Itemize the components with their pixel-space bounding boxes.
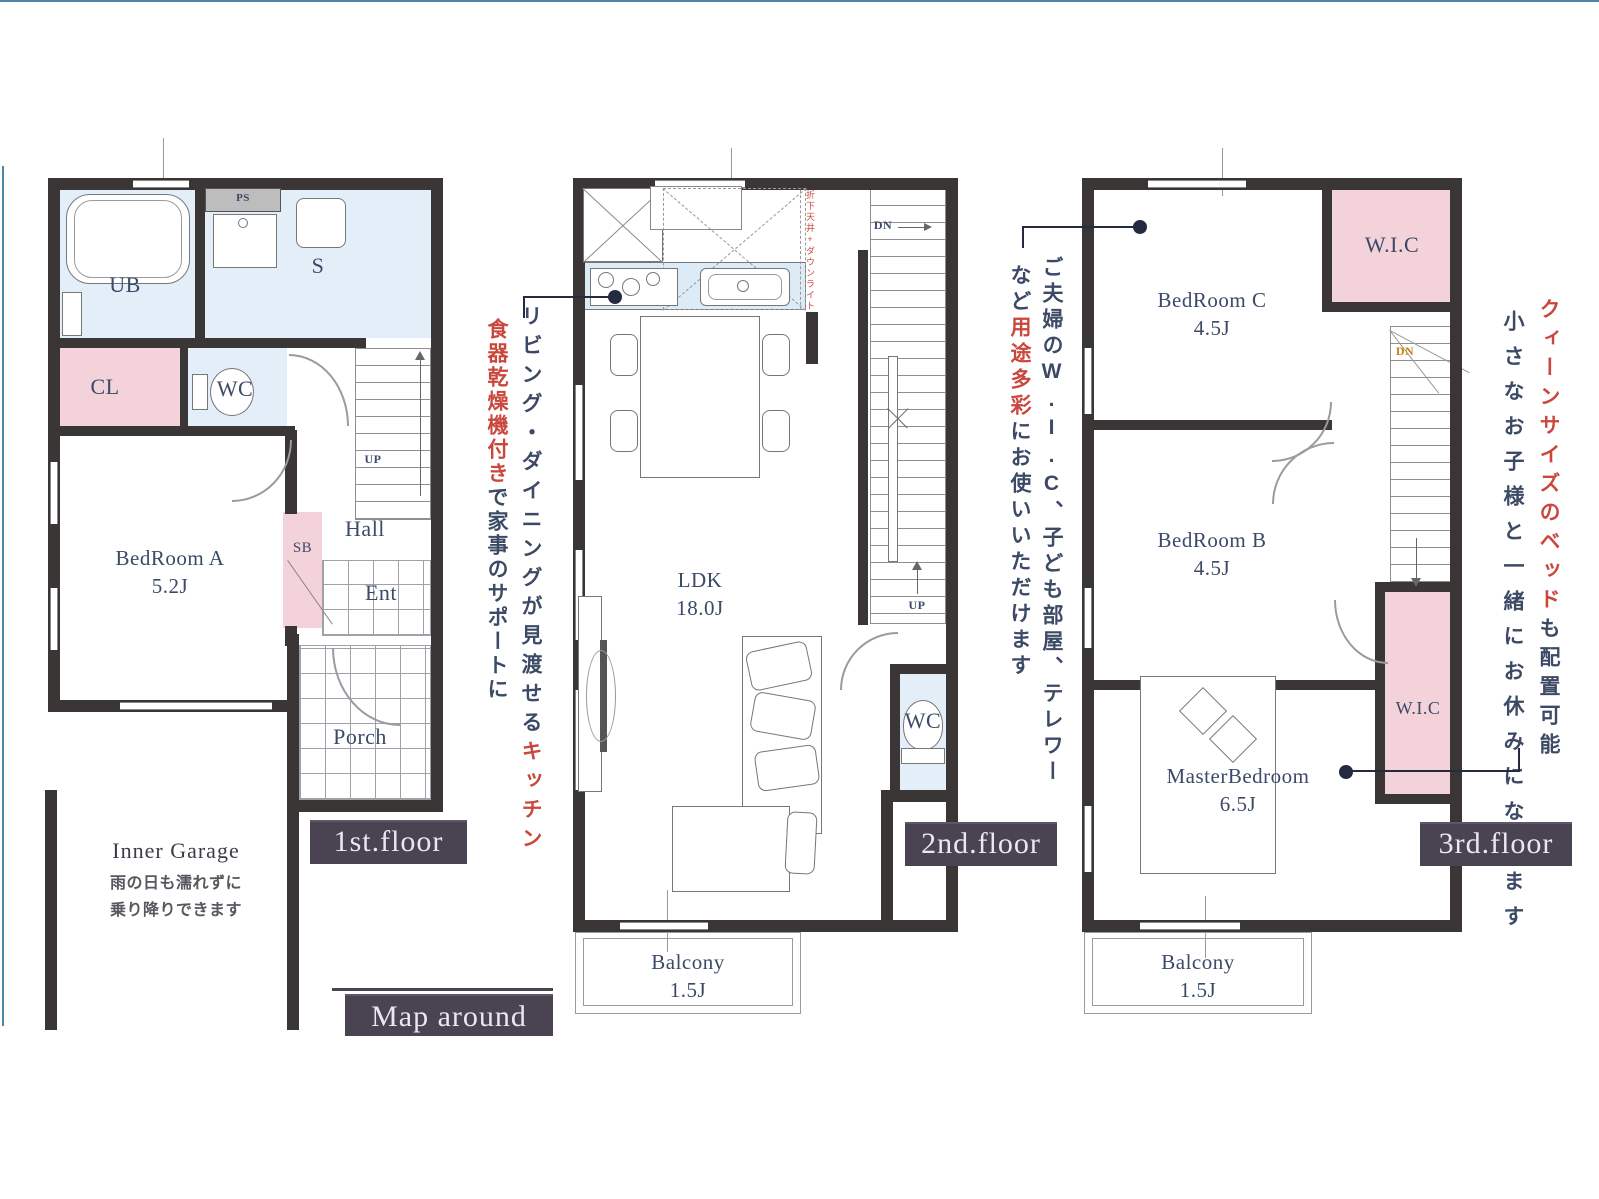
window	[1084, 348, 1092, 414]
door-arc-wc-2f	[840, 632, 898, 690]
annotation-bed-col1: クィーンサイズのベッドも配置可能	[1533, 298, 1563, 762]
room-label-ub: UB	[85, 272, 165, 298]
window	[1140, 922, 1240, 930]
balcony-size-2f: 1.5J	[670, 978, 706, 1002]
balcony-name-3f: Balcony	[1161, 950, 1234, 974]
bedroom-b-name: BedRoom B	[1158, 528, 1267, 552]
room-label-ps: PS	[207, 192, 279, 204]
wall	[180, 348, 188, 432]
room-label-master: MasterBedroom 6.5J	[1148, 762, 1328, 818]
bedroom-c-size: 4.5J	[1194, 316, 1230, 340]
room-sb	[283, 512, 322, 628]
window	[620, 922, 708, 930]
stairs-dn-label-3f: DN	[1390, 344, 1420, 359]
balcony-label-3f: Balcony 1.5J	[1128, 948, 1268, 1004]
annotation-text: も配置可能	[1537, 617, 1560, 762]
chair	[610, 410, 638, 452]
dining-table	[640, 316, 760, 478]
wall	[48, 426, 295, 436]
leader-line	[523, 296, 615, 298]
floor3-badge: 3rd.floor	[1420, 822, 1572, 866]
wall	[285, 626, 297, 646]
up-arrow-line	[917, 566, 918, 594]
window	[50, 588, 58, 650]
stairs-arrow-up	[415, 348, 425, 360]
window	[1084, 806, 1092, 872]
garage-wall	[45, 790, 57, 1030]
bedroom-a-size: 5.2J	[152, 574, 188, 598]
stairs-arrow-line	[420, 356, 421, 496]
door-arc-master	[1334, 600, 1388, 664]
annotation-kitchen-col2: 食器乾燥機付きで家事のサポートに	[481, 318, 511, 702]
wall	[195, 186, 205, 344]
ldk-name: LDK	[678, 568, 723, 592]
room-wic-bottom	[1385, 592, 1450, 794]
annotation-text: で家事のサポートに	[485, 486, 508, 702]
chair	[762, 334, 790, 376]
leader-line	[1518, 748, 1520, 772]
annotation-dot-master	[1339, 765, 1353, 779]
annotation-text: リビング・ダイニングが見渡せる	[519, 305, 542, 740]
annotation-text: にお使いいただけます	[1008, 420, 1031, 680]
window	[1148, 180, 1246, 188]
burner	[622, 278, 640, 296]
garage-note: Inner Garage 雨の日も濡れずに 乗り降りできます	[78, 838, 274, 924]
stairs-2f	[870, 188, 946, 624]
dn-arrow-line-3f	[1416, 538, 1417, 580]
wall	[1322, 302, 1462, 312]
leader-line	[523, 296, 525, 318]
room-label-wc-2f: WC	[895, 708, 951, 734]
toilet-tank-2f	[901, 748, 945, 764]
stairs-up-label-2f: UP	[902, 598, 932, 613]
door-arc-bedroom-a	[232, 440, 292, 502]
window	[120, 702, 272, 710]
stairs-up-label-1f: UP	[358, 452, 388, 467]
stool	[296, 198, 346, 248]
annotation-text: など	[1008, 264, 1031, 316]
room-label-cl: CL	[75, 374, 135, 400]
wall	[287, 634, 299, 812]
bedroom-c-name: BedRoom C	[1158, 288, 1267, 312]
faucet	[737, 280, 749, 292]
sofa-seat	[672, 806, 790, 892]
room-label-wc: WC	[205, 376, 265, 402]
garage-title: Inner Garage	[78, 838, 274, 864]
window	[1084, 588, 1092, 648]
bathtub-inner	[74, 200, 182, 278]
wall	[1082, 178, 1462, 190]
dashed-line	[800, 190, 801, 310]
room-label-ent: Ent	[350, 580, 412, 606]
annotation-kitchen-col1: リビング・ダイニングが見渡せるキッチン	[515, 305, 545, 856]
master-size: 6.5J	[1220, 792, 1256, 816]
wall	[881, 800, 893, 932]
wall	[806, 312, 818, 364]
annotation-text-red: キッチン	[519, 740, 542, 856]
kitchen-ceiling-note: 折下天井+ダウンライト	[804, 190, 817, 312]
map-badge-rule	[332, 988, 553, 991]
annotation-text-red: 用途多彩	[1008, 316, 1031, 420]
sofa-cushion	[784, 811, 817, 874]
room-label-bedroom-c: BedRoom C 4.5J	[1137, 286, 1287, 342]
wall	[287, 800, 443, 812]
garage-note-line2: 乗り降りできます	[78, 897, 274, 924]
sofa-cushion	[754, 744, 821, 792]
room-label-ldk: LDK 18.0J	[650, 566, 750, 622]
garage-wall	[287, 812, 299, 1030]
dn-arrow-line	[898, 227, 924, 228]
page-frame-left	[2, 166, 4, 1026]
burner	[646, 272, 660, 286]
stairs-dn-label-2f: DN	[868, 218, 898, 233]
balcony-name-2f: Balcony	[651, 950, 724, 974]
door-arc-wc	[289, 354, 349, 426]
room-label-sb: SB	[285, 540, 320, 557]
leader-line	[1022, 226, 1024, 248]
wall	[1450, 178, 1462, 932]
chair	[762, 410, 790, 452]
bedroom-a-name: BedRoom A	[116, 546, 225, 570]
garage-note-line1: 雨の日も濡れずに	[78, 870, 274, 897]
wall	[890, 664, 958, 674]
floor1-badge: 1st.floor	[310, 820, 467, 864]
ldk-size: 18.0J	[676, 596, 723, 620]
wall	[431, 178, 443, 812]
annotation-text: ご夫婦のW.I.C、子ども部屋、テレワー	[1040, 256, 1063, 786]
wall	[946, 178, 958, 932]
room-label-hall: Hall	[330, 516, 400, 542]
window	[50, 462, 58, 524]
wall	[1375, 794, 1462, 804]
room-label-bedroom-b: BedRoom B 4.5J	[1137, 526, 1287, 582]
room-label-s: S	[278, 253, 358, 279]
annotation-dot-bedroom-c	[1133, 220, 1147, 234]
window	[575, 385, 583, 480]
annotation-wic-col1: ご夫婦のW.I.C、子ども部屋、テレワー	[1036, 256, 1066, 786]
wall	[858, 250, 868, 625]
stairs-handrail	[888, 356, 898, 562]
room-label-wic-top: W.I.C	[1356, 232, 1428, 258]
master-name: MasterBedroom	[1167, 764, 1310, 788]
dn-arrow-3f	[1411, 578, 1421, 590]
balcony-label-2f: Balcony 1.5J	[618, 948, 758, 1004]
bedroom-b-size: 4.5J	[1194, 556, 1230, 580]
annotation-wic-col2: など用途多彩にお使いいただけます	[1004, 264, 1034, 680]
dn-arrow	[924, 223, 935, 231]
bath-counter	[62, 292, 82, 336]
wall	[1082, 920, 1462, 932]
up-arrow	[912, 558, 922, 570]
page-frame-top	[0, 0, 1599, 2]
floor2-badge: 2nd.floor	[905, 822, 1057, 866]
room-label-wic-bottom: W.I.C	[1388, 698, 1448, 719]
wall	[48, 338, 366, 348]
washer-knob	[238, 218, 248, 228]
room-label-porch: Porch	[318, 724, 402, 750]
map-around-badge: Map around	[345, 994, 553, 1036]
annotation-text-red: クィーンサイズのベッド	[1537, 298, 1560, 617]
wall	[1322, 188, 1332, 312]
leader-line	[1022, 226, 1135, 228]
leader-line	[1346, 770, 1520, 772]
annotation-text-red: 食器乾燥機付き	[485, 318, 508, 486]
burner	[598, 272, 614, 288]
room-label-bedroom-a: BedRoom A 5.2J	[95, 544, 245, 600]
chair	[610, 334, 638, 376]
tv-stand	[586, 650, 616, 742]
balcony-size-3f: 1.5J	[1180, 978, 1216, 1002]
window	[133, 180, 189, 188]
